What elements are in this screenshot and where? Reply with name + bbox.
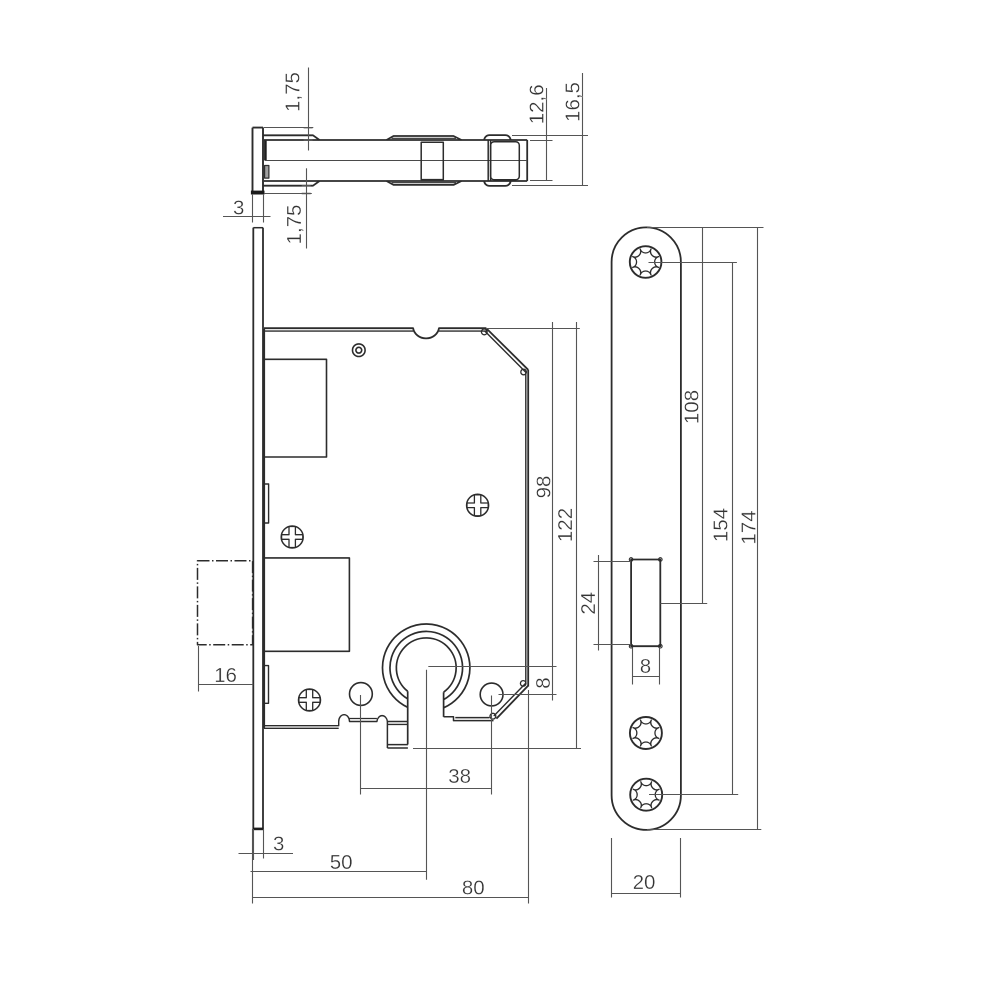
svg-text:1,75: 1,75 [283, 205, 306, 245]
svg-text:38: 38 [448, 765, 471, 788]
svg-text:1,75: 1,75 [282, 72, 305, 112]
svg-text:174: 174 [737, 510, 760, 544]
svg-text:3: 3 [233, 197, 244, 220]
svg-text:8: 8 [532, 677, 555, 688]
svg-text:16,5: 16,5 [561, 82, 584, 122]
svg-text:3: 3 [273, 832, 284, 855]
svg-text:108: 108 [680, 390, 703, 424]
svg-text:20: 20 [633, 871, 656, 894]
svg-text:24: 24 [577, 592, 600, 615]
svg-text:122: 122 [554, 508, 577, 542]
svg-text:98: 98 [532, 476, 555, 499]
svg-text:12,6: 12,6 [525, 84, 548, 124]
svg-text:8: 8 [640, 655, 651, 678]
svg-text:50: 50 [330, 851, 353, 874]
svg-text:80: 80 [462, 876, 485, 899]
svg-text:16: 16 [214, 664, 237, 687]
svg-text:154: 154 [709, 508, 732, 542]
